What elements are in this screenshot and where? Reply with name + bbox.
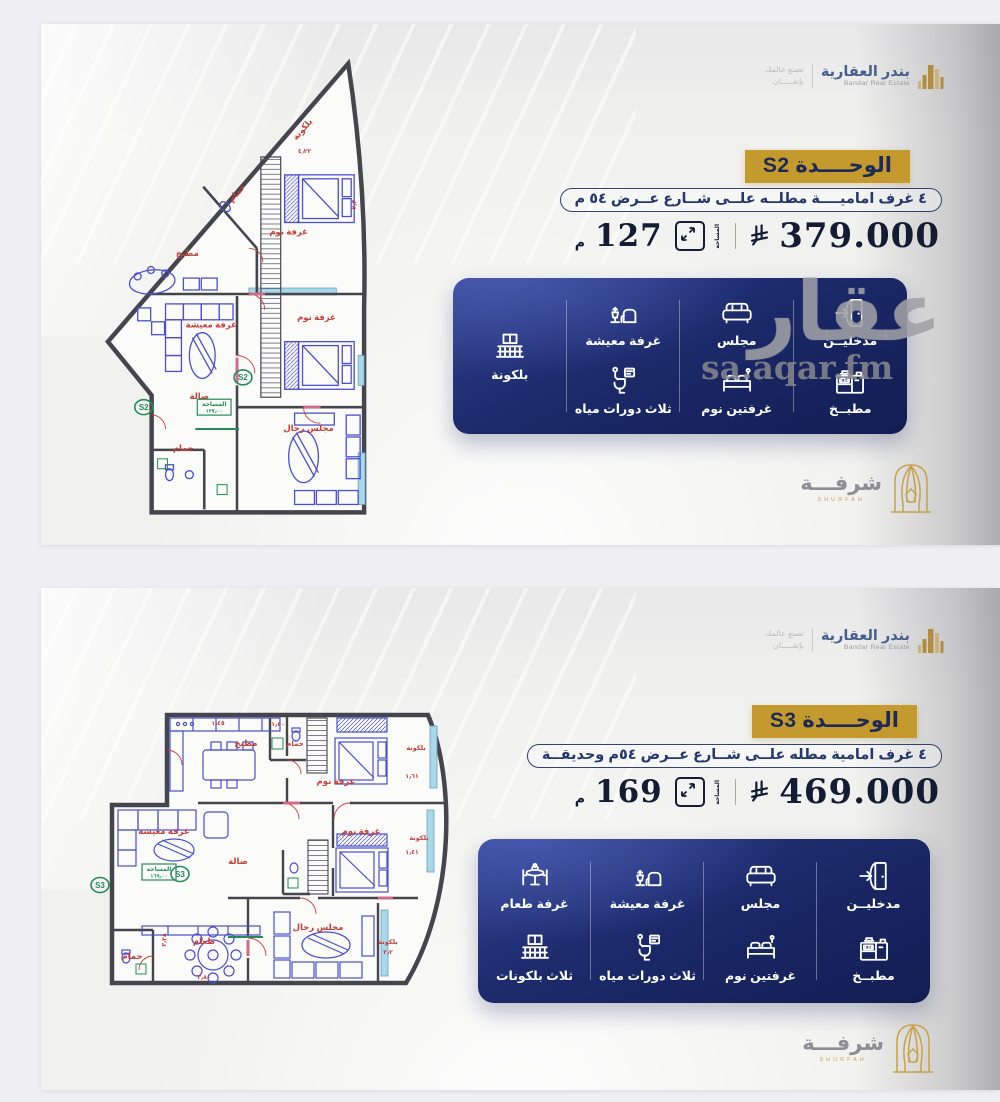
unit-panel-s3: مطبخ١٫٤٥حمام١٫٤٠غرفة نومبلكونة١٫٦١غرفة م… (41, 588, 1000, 1090)
feature-item: ثلاث دورات مياه (575, 364, 672, 416)
plan-label: غرفة نوم (269, 226, 308, 237)
feature-item: مطبــخ (829, 364, 872, 416)
plan-stairs (261, 157, 281, 397)
feature-column: غرفة معيشةثلاث دورات مياه (567, 278, 681, 434)
feature-item: غرفة طعام (500, 859, 568, 911)
living-icon (606, 296, 640, 330)
plan-label: ١٫٤٠ (271, 722, 284, 728)
shurfah-logo: شرفـــة SHURFAH (802, 1018, 936, 1078)
unit-badge-text: S2 (139, 403, 149, 412)
area-unit: م (575, 790, 585, 812)
feature-item: مدخليــن (823, 296, 877, 348)
balcony-icon (493, 330, 527, 364)
feature-label: غرفة معيشة (585, 333, 661, 348)
plan-label: ١٫٦١ (405, 773, 418, 780)
plan-label: غرفة نوم (342, 826, 381, 837)
feature-label: مطبــخ (829, 401, 872, 416)
feature-label: مجلس (741, 896, 781, 911)
feature-column: مجلسغرفتين نوم (704, 839, 817, 1003)
unit-badge-text: S3 (175, 870, 185, 879)
plan-label: حمام (121, 951, 142, 962)
unit-badge-text: S3 (95, 881, 105, 890)
feature-column: مجلسغرفتين نوم (680, 278, 794, 434)
plan-label: مطبخ (176, 248, 199, 259)
brand-tagline: نصنع عالمك بإتقـــــان (765, 64, 804, 88)
plan-label: حمام (286, 741, 304, 748)
arch-curtain-icon (890, 1018, 936, 1078)
brand-divider (812, 628, 813, 652)
feature-item: مجلس (741, 859, 781, 911)
plan-label: بلكونة (409, 835, 428, 842)
area-unit: م (575, 234, 585, 256)
sofa-icon (720, 296, 754, 330)
plan-label: ٤٫٢٢ (298, 149, 311, 155)
dining-icon (518, 859, 552, 893)
building-bars-icon (918, 59, 944, 93)
feature-label: مدخليــن (847, 896, 901, 911)
feature-column: غرفة معيشةثلاث دورات مياه (591, 839, 704, 1003)
feature-item: غرفتين نوم (701, 364, 772, 416)
shurfah-name-en: SHURFAH (800, 497, 882, 503)
feature-label: ثلاث دورات مياه (575, 401, 672, 416)
feature-item: ثلاث بلكونات (496, 931, 573, 983)
plan-label: صالة (228, 856, 248, 866)
feature-label: مجلس (717, 333, 757, 348)
feature-label: غرفتين نوم (701, 401, 772, 416)
area-value: 169 (595, 774, 663, 810)
feature-item: مجلس (717, 296, 757, 348)
plan-label: مجلس رجال (293, 922, 344, 933)
unit-panel-s2: بلكونة٤٫٢٢حمامغرفة نوممطبخ٢٫٣غرفة نومغرف… (41, 24, 1000, 545)
arch-curtain-icon (888, 458, 934, 518)
plan-area-box-title: المساحة (147, 866, 172, 873)
brand-logo: نصنع عالمك بإتقـــــان بندر العقارية Ban… (765, 616, 944, 664)
plan-label: حمام (173, 443, 194, 454)
plan-label: غرفة نوم (317, 776, 356, 787)
feature-column: مدخليــنمطبــخ (817, 839, 930, 1003)
expand-arrows-icon (675, 777, 705, 807)
unit-description: ٤ غرف اماميــــة مطلــه علــى شــارع عــ… (560, 188, 942, 212)
kitchen-icon (833, 364, 867, 398)
toilet-icon (606, 364, 640, 398)
sofa-icon (744, 859, 778, 893)
plan-label: ٢٫٣ (351, 200, 358, 210)
plan-label: ١٫٤١ (405, 850, 418, 856)
feature-label: ثلاث بلكونات (496, 968, 573, 983)
floor-plan-s3: مطبخ١٫٤٥حمام١٫٤٠غرفة نومبلكونة١٫٦١غرفة م… (78, 698, 458, 1003)
plan-label: مجلس رجال (283, 423, 333, 434)
plan-label: غرفة معيشة (138, 826, 190, 837)
feature-label: مدخليــن (823, 333, 877, 348)
brand-logo: نصنع عالمك بإتقـــــان بندر العقارية Ban… (765, 52, 944, 100)
price-value: 469.000 (779, 772, 940, 812)
bed-icon (720, 364, 754, 398)
feature-label: غرفة معيشة (610, 896, 686, 911)
plan-label: غرفة معيشة (186, 320, 237, 331)
plan-label: ١٫٤٥ (211, 721, 225, 727)
feature-item: مدخليــن (847, 859, 901, 911)
shurfah-name-ar: شرفـــة (802, 1033, 884, 1054)
price-area-row: م 169 المساحة 469.000 (575, 772, 940, 812)
feature-item: غرفة معيشة (610, 859, 686, 911)
unit-badge-text: S2 (238, 373, 248, 382)
unit-description: ٤ غرف امامية مطله علــى شــارع عــرض ٥٤م… (527, 744, 942, 768)
plan-label: ٣٫٢٨ (161, 933, 168, 947)
balcony-icon (518, 931, 552, 965)
plan-area-box-value: ١٢٧٫٠٠ (206, 409, 223, 415)
floor-plan-s2: بلكونة٤٫٢٢حمامغرفة نوممطبخ٢٫٣غرفة نومغرف… (100, 56, 378, 526)
shurfah-name-en: SHURFAH (802, 1057, 884, 1063)
row-divider (735, 779, 737, 805)
features-card: مدخليــنمطبــخمجلسغرفتين نومغرفة معيشةثل… (478, 839, 930, 1003)
plan-label: بلكونة (406, 745, 425, 752)
row-divider (735, 223, 737, 249)
living-icon (631, 859, 665, 893)
unit-banner: الوحــــدة S2 (745, 150, 910, 183)
feature-label: مطبــخ (852, 968, 895, 983)
plan-label: ٢٫٢ (383, 950, 393, 956)
door-entry-icon (857, 859, 891, 893)
area-caption: المساحة (715, 224, 721, 249)
features-grid: مدخليــنمطبــخمجلسغرفتين نومغرفة معيشةثل… (453, 278, 907, 434)
feature-label: بلكونة (491, 367, 528, 382)
feature-column: بلكونة (453, 278, 567, 434)
brand-names: بندر العقارية Bandar Real Estate (821, 629, 910, 651)
feature-label: غرفتين نوم (725, 968, 796, 983)
feature-item: مطبــخ (852, 931, 895, 983)
plan-stairs (307, 718, 327, 773)
area-caption: المساحة (715, 780, 721, 805)
feature-item: غرفة معيشة (585, 296, 661, 348)
price-value: 379.000 (779, 216, 940, 256)
features-grid: مدخليــنمطبــخمجلسغرفتين نومغرفة معيشةثل… (478, 839, 930, 1003)
price-area-row: م 127 المساحة 379.000 (575, 216, 940, 256)
door-entry-icon (833, 296, 867, 330)
feature-item: بلكونة (491, 330, 528, 382)
feature-column: غرفة طعامثلاث بلكونات (478, 839, 591, 1003)
feature-item: ثلاث دورات مياه (599, 931, 696, 983)
brand-divider (812, 64, 813, 88)
plan-label: طعام (193, 936, 215, 947)
building-bars-icon (918, 623, 944, 657)
bed-icon (744, 931, 778, 965)
shurfah-logo: شرفـــة SHURFAH (800, 458, 934, 518)
expand-arrows-icon (675, 221, 705, 251)
toilet-icon (631, 931, 665, 965)
features-card: مدخليــنمطبــخمجلسغرفتين نومغرفة معيشةثل… (453, 278, 907, 434)
shurfah-name-ar: شرفـــة (800, 473, 882, 494)
saudi-riyal-icon (750, 780, 769, 804)
plan-area-box-title: المساحة (202, 401, 226, 408)
feature-label: غرفة طعام (500, 896, 568, 911)
brand-names: بندر العقارية Bandar Real Estate (821, 65, 910, 87)
area-value: 127 (595, 218, 663, 254)
feature-column: مدخليــنمطبــخ (794, 278, 908, 434)
saudi-riyal-icon (750, 224, 769, 248)
plan-label: مطبخ (234, 738, 257, 749)
kitchen-icon (857, 931, 891, 965)
plan-label: ٣٫٨٠ (197, 974, 210, 981)
feature-item: غرفتين نوم (725, 931, 796, 983)
plan-area-box-value: ١٦٩٫٠٠ (150, 874, 167, 880)
brand-tagline: نصنع عالمك بإتقـــــان (765, 628, 804, 652)
plan-label: بلكونة (378, 939, 397, 946)
unit-banner: الوحــــدة S3 (752, 705, 917, 738)
feature-label: ثلاث دورات مياه (599, 968, 696, 983)
plan-label: غرفة نوم (297, 312, 336, 323)
plan-stairs (308, 840, 328, 894)
